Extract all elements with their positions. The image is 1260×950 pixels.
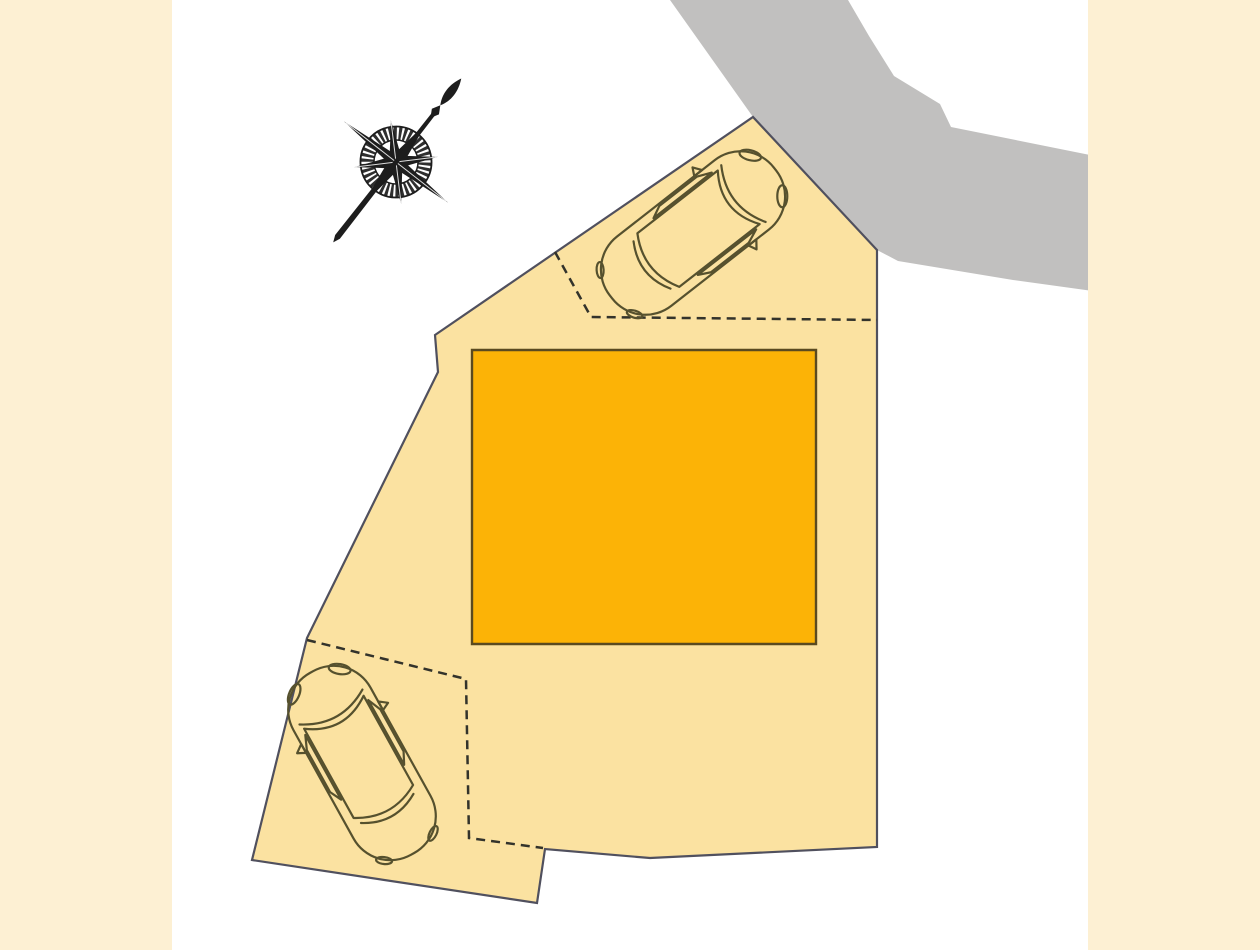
right-margin-panel (1088, 0, 1260, 950)
building-footprint (472, 350, 816, 644)
compass-north-icon (281, 38, 513, 283)
site-plan-canvas (0, 0, 1260, 950)
left-margin-panel (0, 0, 172, 950)
site-plan-page (0, 0, 1260, 950)
